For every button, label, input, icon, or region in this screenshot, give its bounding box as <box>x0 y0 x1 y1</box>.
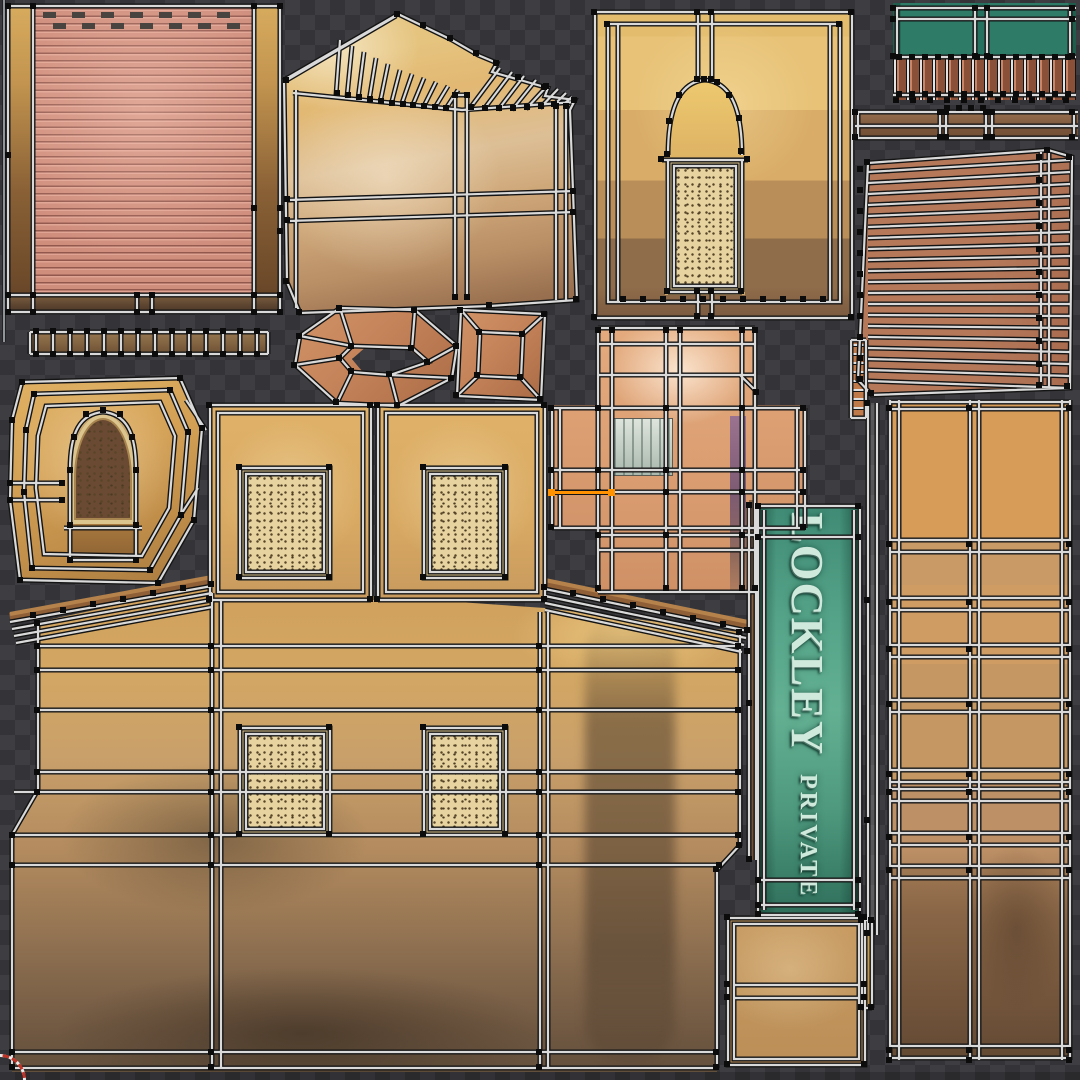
facade-stain-streak <box>585 612 675 1062</box>
sign-line-2: PRIVATE <box>795 774 822 898</box>
shutter-vent-row <box>43 12 243 18</box>
selected-vertex <box>548 489 555 496</box>
island-railing-balusters[interactable] <box>893 57 1076 100</box>
viewport-edge-shade <box>0 1072 1080 1080</box>
selected-edge-line <box>551 491 613 494</box>
facade-grille-window <box>424 468 506 578</box>
uv-boundary-line <box>3 0 5 342</box>
shutter-vent-row <box>53 23 243 29</box>
uv-2d-cursor[interactable] <box>0 1054 26 1080</box>
selected-uv-edge[interactable] <box>551 489 613 495</box>
island-wood-beam-strip[interactable] <box>855 110 1078 140</box>
shutter-curtain <box>33 8 255 297</box>
island-thin-uv-strip[interactable] <box>868 403 878 935</box>
railing-vertex-row <box>893 97 1076 103</box>
island-gable-wall[interactable] <box>283 10 579 316</box>
facade-grille-window <box>424 728 506 835</box>
island-ladder-fragment[interactable] <box>851 338 866 418</box>
island-sign-back-box[interactable] <box>728 918 865 1065</box>
shutter-frame-left <box>10 7 34 313</box>
island-slat-fan[interactable] <box>856 146 1074 398</box>
island-window-cross-left-arm[interactable] <box>552 405 598 528</box>
cursor-ring-red <box>0 1051 29 1080</box>
island-box-square[interactable] <box>457 308 545 400</box>
facade-grille-window <box>240 468 330 578</box>
island-roller-shutter[interactable] <box>8 5 280 315</box>
sign-line-1: LOCKLEY <box>782 512 835 756</box>
shop-sign-text: LOCKLEY PRIVATE LTD. <box>765 512 851 908</box>
cross-white-window <box>613 418 673 476</box>
island-railing-panel[interactable] <box>893 3 1076 57</box>
arch-plaque-base <box>70 524 136 558</box>
facade-grille-window <box>240 728 330 835</box>
uv-editor-viewport: LOCKLEY PRIVATE LTD. <box>0 0 1080 1080</box>
arch-window-grille <box>668 160 742 292</box>
selected-vertex <box>608 489 615 496</box>
island-thin-wood-strip[interactable] <box>749 500 757 860</box>
shutter-sill <box>10 296 278 313</box>
island-side-column-wall[interactable] <box>888 400 1072 1060</box>
shutter-frame-right <box>254 7 278 313</box>
cross-purple-strip <box>730 416 746 590</box>
island-plank-ladder[interactable] <box>30 331 268 355</box>
